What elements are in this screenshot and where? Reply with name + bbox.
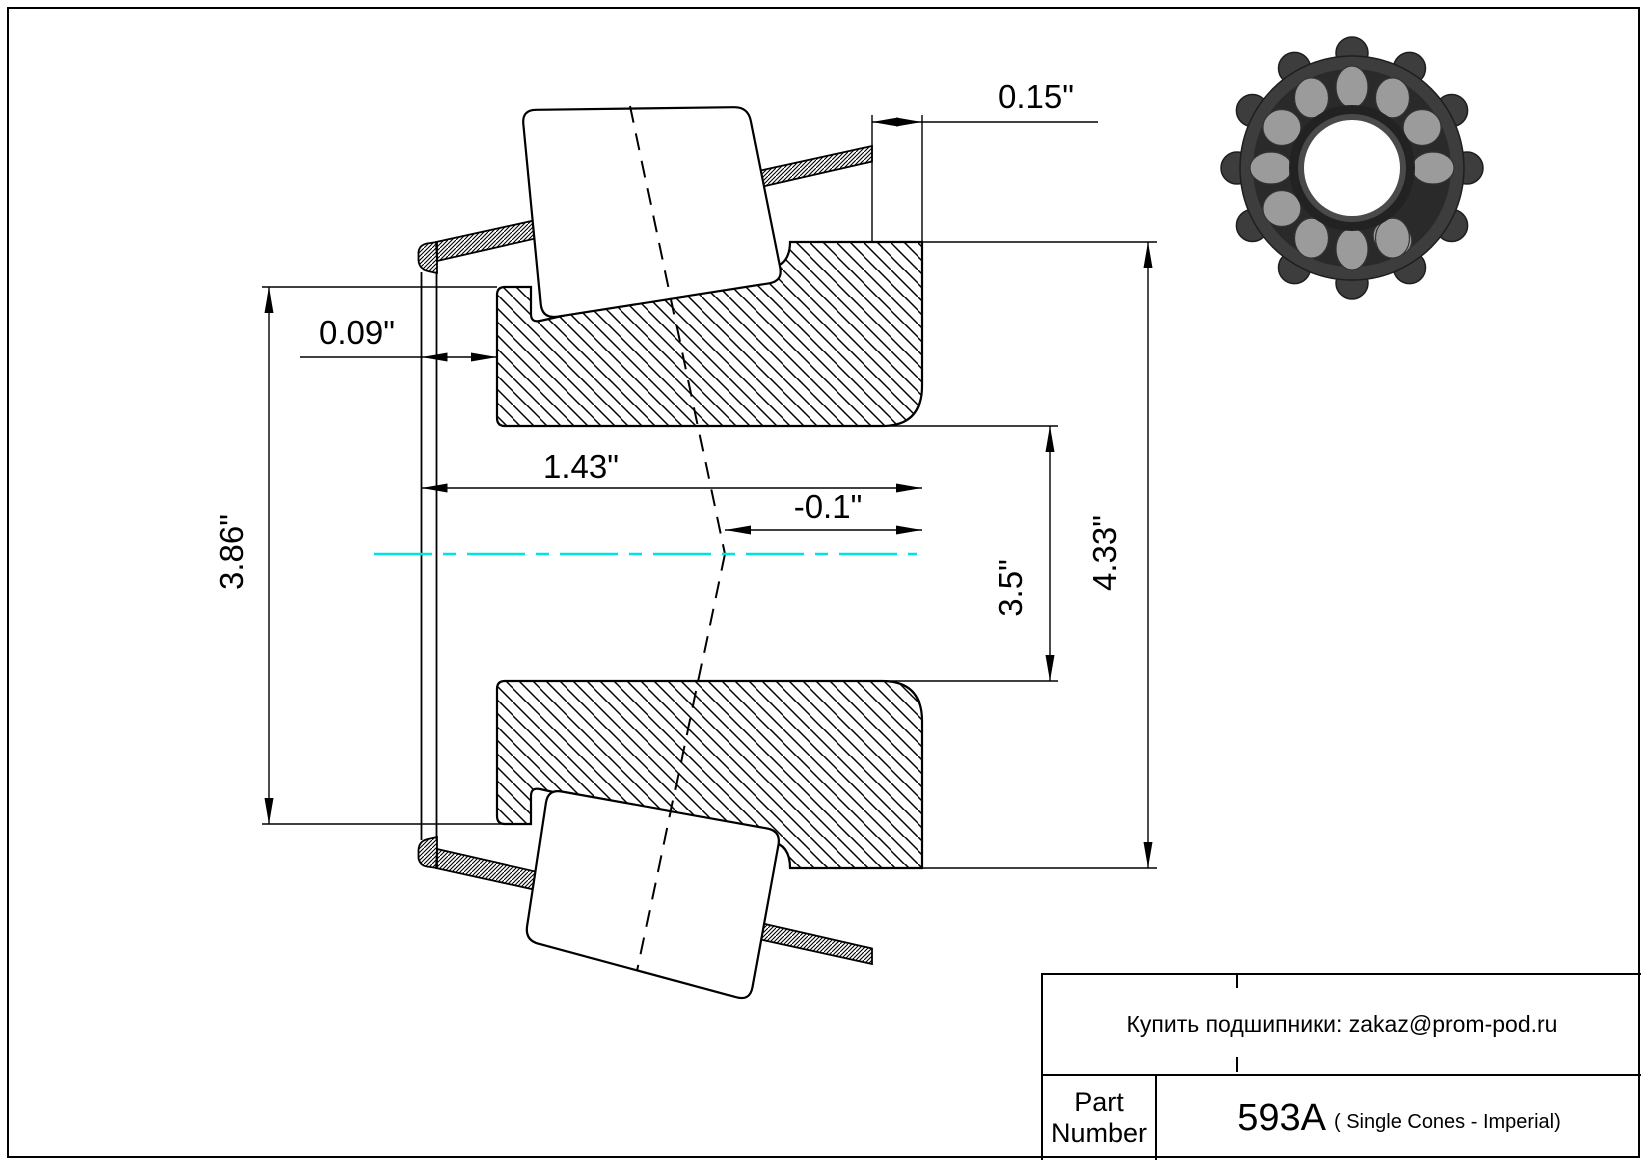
arrow	[1144, 842, 1153, 868]
dim-label-front-offset: 0.09"	[319, 314, 395, 351]
dim-label-outer: 4.33"	[1086, 515, 1123, 591]
part-number-value: 593A	[1237, 1097, 1326, 1140]
bearing-photo	[1221, 37, 1483, 299]
arrow	[1144, 242, 1153, 268]
title-block-part-row: Part Number 593A ( Single Cones - Imperi…	[1043, 1074, 1641, 1160]
arrow	[1046, 426, 1055, 452]
arrow	[422, 353, 448, 362]
part-type-label: ( Single Cones - Imperial)	[1334, 1103, 1561, 1134]
arrow	[725, 526, 751, 535]
cage-hook-upper	[419, 242, 438, 273]
title-block-note: Купить подшипники: zakaz@prom-pod.ru	[1043, 975, 1641, 1074]
cage-hook-lower	[419, 837, 438, 868]
arrow	[422, 484, 448, 493]
arrow	[1046, 655, 1055, 681]
rollers	[523, 106, 780, 998]
title-block-tick	[1236, 973, 1238, 988]
dim-label-cage-overhang: 0.15"	[998, 78, 1074, 115]
dim-label-effective-center: -0.1"	[794, 488, 863, 525]
arrow	[896, 526, 922, 535]
dim-label-bore: 3.5"	[992, 559, 1029, 617]
arrow	[265, 287, 274, 313]
arrow	[265, 798, 274, 824]
part-number-label: Part Number	[1043, 1076, 1157, 1160]
part-number-cell: 593A ( Single Cones - Imperial)	[1157, 1076, 1641, 1160]
arrow	[471, 353, 497, 362]
drawing-page: 0.15" 0.09" 1.43" -0.1" 3.86" 3.5" 4.33"	[0, 0, 1649, 1167]
dim-label-cage-outer: 3.86"	[213, 514, 250, 590]
dim-label-cone-width: 1.43"	[543, 448, 619, 485]
roller-upper	[523, 107, 780, 317]
bearing-bore	[1304, 120, 1400, 216]
title-block-tick	[1236, 1057, 1238, 1072]
arrow	[872, 118, 898, 127]
arrow	[896, 118, 922, 127]
arrow	[896, 484, 922, 493]
title-block: Купить подшипники: zakaz@prom-pod.ru Par…	[1041, 973, 1641, 1160]
